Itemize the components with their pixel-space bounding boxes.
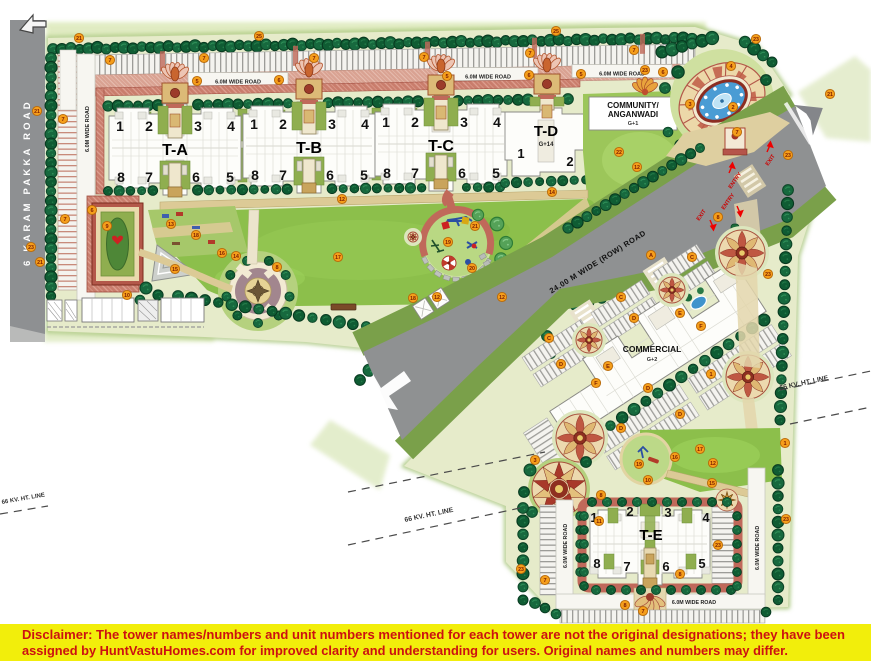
svg-text:G+14: G+14: [539, 142, 555, 148]
svg-text:17: 17: [697, 447, 703, 453]
svg-text:15: 15: [709, 481, 715, 487]
svg-text:D: D: [646, 386, 650, 392]
svg-text:18: 18: [410, 296, 416, 302]
svg-text:7: 7: [312, 56, 315, 62]
svg-text:19: 19: [445, 240, 451, 246]
svg-text:7: 7: [641, 609, 644, 615]
svg-text:20: 20: [469, 266, 475, 272]
svg-text:12: 12: [434, 295, 440, 301]
svg-text:13: 13: [168, 222, 174, 228]
svg-text:3: 3: [328, 116, 336, 132]
svg-text:7: 7: [735, 130, 738, 136]
svg-text:1: 1: [517, 146, 524, 161]
svg-text:5: 5: [226, 169, 234, 185]
svg-text:12: 12: [634, 165, 640, 171]
svg-text:23: 23: [518, 567, 524, 573]
svg-text:11: 11: [596, 519, 602, 525]
svg-text:21: 21: [472, 224, 478, 230]
svg-text:G+2: G+2: [647, 357, 658, 363]
svg-text:7: 7: [632, 48, 635, 54]
svg-text:8: 8: [593, 556, 600, 571]
svg-text:COMMERCIAL: COMMERCIAL: [623, 344, 682, 354]
svg-text:T-B: T-B: [296, 140, 322, 157]
svg-text:4: 4: [493, 114, 501, 130]
svg-text:5: 5: [195, 79, 198, 85]
svg-text:2: 2: [566, 154, 573, 169]
svg-text:10: 10: [645, 478, 651, 484]
svg-text:8: 8: [623, 603, 626, 609]
svg-text:21: 21: [37, 260, 43, 266]
svg-text:7: 7: [202, 56, 205, 62]
svg-text:2: 2: [626, 504, 633, 519]
svg-text:23: 23: [783, 517, 789, 523]
svg-text:12: 12: [710, 461, 716, 467]
svg-text:5: 5: [698, 556, 705, 571]
svg-text:6 KARAM PAKKA ROAD: 6 KARAM PAKKA ROAD: [22, 99, 33, 266]
svg-text:D: D: [678, 412, 682, 418]
svg-text:2: 2: [731, 105, 734, 111]
svg-text:6.0M WIDE ROAD: 6.0M WIDE ROAD: [755, 526, 761, 570]
svg-text:2: 2: [145, 118, 153, 134]
svg-text:7: 7: [108, 58, 111, 64]
svg-text:1: 1: [783, 441, 786, 447]
svg-text:5: 5: [445, 74, 448, 80]
svg-text:7: 7: [279, 167, 287, 183]
svg-text:23: 23: [785, 153, 791, 159]
svg-text:6: 6: [326, 167, 334, 183]
svg-text:A: A: [649, 253, 653, 259]
svg-text:23: 23: [28, 245, 34, 251]
svg-text:T-A: T-A: [162, 142, 188, 159]
svg-text:D: D: [559, 362, 563, 368]
svg-text:16: 16: [672, 455, 678, 461]
svg-text:7: 7: [528, 51, 531, 57]
svg-text:6.0M WIDE ROAD: 6.0M WIDE ROAD: [85, 106, 91, 152]
svg-text:T-D: T-D: [534, 123, 558, 140]
svg-text:4: 4: [227, 118, 235, 134]
svg-text:25: 25: [256, 34, 262, 40]
svg-text:21: 21: [76, 36, 82, 42]
svg-text:7: 7: [543, 578, 546, 584]
svg-text:3: 3: [688, 102, 691, 108]
svg-text:22: 22: [616, 150, 622, 156]
svg-text:1: 1: [382, 114, 390, 130]
svg-text:23: 23: [642, 68, 648, 74]
svg-text:8: 8: [716, 215, 719, 221]
svg-text:7: 7: [63, 217, 66, 223]
svg-text:7: 7: [145, 169, 153, 185]
svg-text:7: 7: [411, 165, 419, 181]
svg-text:ANGANWADI: ANGANWADI: [608, 110, 658, 119]
svg-text:6.0M WIDE ROAD: 6.0M WIDE ROAD: [672, 600, 716, 606]
svg-text:2: 2: [279, 116, 287, 132]
svg-text:8: 8: [251, 167, 259, 183]
svg-text:F: F: [699, 324, 703, 330]
svg-text:9: 9: [105, 224, 108, 230]
svg-text:6: 6: [662, 559, 669, 574]
svg-text:17: 17: [335, 255, 341, 261]
svg-text:F: F: [594, 381, 598, 387]
svg-text:12: 12: [339, 197, 345, 203]
svg-text:8: 8: [599, 493, 602, 499]
svg-text:6: 6: [458, 165, 466, 181]
svg-text:5: 5: [492, 165, 500, 181]
svg-text:6.0M WIDE ROAD: 6.0M WIDE ROAD: [563, 524, 569, 568]
svg-text:6: 6: [277, 78, 280, 84]
svg-text:1: 1: [709, 372, 712, 378]
svg-text:COMMUNITY/: COMMUNITY/: [607, 101, 659, 110]
svg-text:3: 3: [460, 114, 468, 130]
svg-text:5: 5: [360, 167, 368, 183]
svg-text:23: 23: [753, 37, 759, 43]
svg-text:E: E: [678, 311, 682, 317]
svg-text:3: 3: [194, 118, 202, 134]
svg-text:19: 19: [636, 462, 642, 468]
svg-text:6.0M WIDE ROAD: 6.0M WIDE ROAD: [599, 72, 645, 78]
svg-text:6.0M WIDE ROAD: 6.0M WIDE ROAD: [215, 80, 261, 86]
svg-text:21: 21: [34, 109, 40, 115]
svg-text:7: 7: [61, 117, 64, 123]
svg-text:23: 23: [715, 543, 721, 549]
svg-text:8: 8: [678, 572, 681, 578]
svg-text:4: 4: [361, 116, 369, 132]
svg-text:4: 4: [702, 510, 710, 525]
svg-text:T-C: T-C: [428, 138, 454, 155]
svg-text:Disclaimer: The tower names/nu: Disclaimer: The tower names/numbers and …: [22, 628, 845, 642]
svg-text:3: 3: [533, 458, 536, 464]
svg-text:18: 18: [193, 233, 199, 239]
svg-text:14: 14: [233, 254, 239, 260]
svg-text:6: 6: [90, 208, 93, 214]
svg-text:15: 15: [172, 267, 178, 273]
svg-text:6: 6: [527, 73, 530, 79]
svg-text:5: 5: [579, 72, 582, 78]
svg-text:D: D: [632, 316, 636, 322]
svg-text:D: D: [619, 426, 623, 432]
svg-text:16: 16: [219, 251, 225, 257]
svg-text:12: 12: [499, 295, 505, 301]
svg-text:1: 1: [250, 116, 258, 132]
svg-text:G+1: G+1: [628, 121, 639, 127]
svg-text:8: 8: [383, 165, 391, 181]
svg-text:E: E: [606, 364, 610, 370]
svg-text:C: C: [547, 336, 551, 342]
svg-text:21: 21: [827, 92, 833, 98]
svg-text:1: 1: [116, 118, 124, 134]
svg-text:10: 10: [124, 293, 130, 299]
svg-text:25: 25: [553, 29, 559, 35]
svg-text:23: 23: [765, 272, 771, 278]
svg-text:assigned by HuntVastuHomes.com: assigned by HuntVastuHomes.com for impro…: [22, 644, 788, 658]
svg-text:C: C: [619, 295, 623, 301]
svg-text:6: 6: [192, 169, 200, 185]
svg-text:8: 8: [275, 265, 278, 271]
svg-text:8: 8: [117, 169, 125, 185]
svg-text:6: 6: [661, 70, 664, 76]
svg-text:7: 7: [422, 55, 425, 61]
svg-text:C: C: [690, 255, 694, 261]
svg-text:3: 3: [664, 505, 671, 520]
svg-text:7: 7: [623, 559, 630, 574]
svg-text:14: 14: [549, 190, 555, 196]
svg-text:2: 2: [411, 114, 419, 130]
svg-text:6.0M WIDE ROAD: 6.0M WIDE ROAD: [465, 75, 511, 81]
